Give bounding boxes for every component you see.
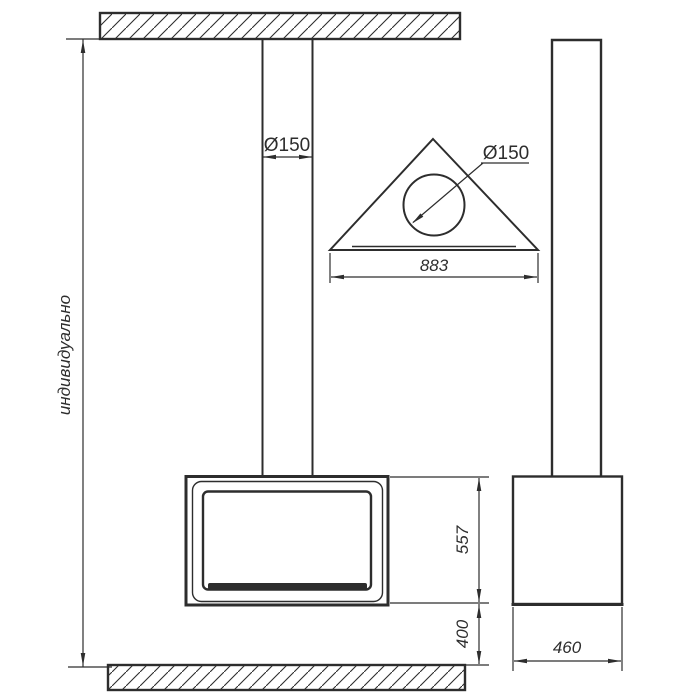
dimension-body-height: 557	[390, 477, 489, 603]
technical-drawing-canvas: индивидуально Ø150 Ø150 883 557 400	[0, 0, 700, 700]
side-pipe	[552, 40, 601, 477]
label-overall-height: индивидуально	[55, 295, 74, 415]
dimension-overall-height: индивидуально	[55, 39, 112, 667]
side-body	[512, 477, 624, 605]
label-top-pipe-diameter: Ø150	[483, 143, 529, 164]
dimension-floor-clearance: 400	[450, 604, 489, 665]
leader-line-flue	[412, 163, 529, 224]
window-bottom-ledge	[208, 583, 367, 590]
dimension-top-plate-width: 883	[330, 253, 538, 283]
dimension-front-pipe-diameter: Ø150	[263, 135, 312, 159]
chimney-pipe-front	[263, 39, 313, 477]
fireplace-technical-drawing: индивидуально Ø150 Ø150 883 557 400	[0, 0, 700, 700]
ceiling-beam	[100, 13, 460, 39]
label-floor-clearance: 400	[453, 619, 472, 648]
firebox-glass-window	[203, 492, 371, 590]
floor-slab	[108, 665, 465, 690]
label-top-plate-width: 883	[420, 256, 449, 275]
dimension-body-depth: 460	[513, 607, 622, 671]
label-front-pipe-diameter: Ø150	[264, 135, 310, 156]
label-body-height: 557	[453, 525, 472, 554]
leader-arrowhead	[412, 213, 423, 223]
label-body-depth: 460	[553, 638, 582, 657]
